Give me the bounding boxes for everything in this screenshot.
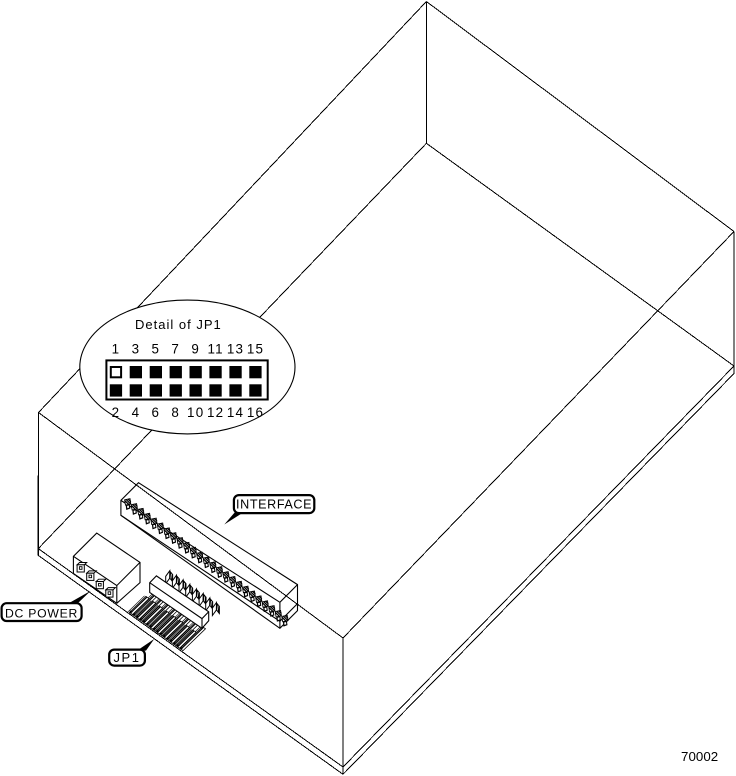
svg-text:5: 5: [151, 341, 160, 356]
svg-text:JP1: JP1: [113, 650, 140, 665]
svg-text:INTERFACE: INTERFACE: [236, 498, 312, 512]
svg-text:10: 10: [187, 405, 204, 420]
svg-text:Detail of JP1: Detail of JP1: [135, 317, 222, 332]
svg-text:14: 14: [227, 405, 244, 420]
svg-text:6: 6: [151, 405, 160, 420]
svg-text:2: 2: [112, 405, 121, 420]
svg-text:13: 13: [227, 341, 244, 356]
svg-text:11: 11: [207, 341, 223, 356]
svg-text:9: 9: [191, 341, 200, 356]
svg-text:16: 16: [247, 405, 264, 420]
svg-text:3: 3: [132, 341, 141, 356]
svg-text:15: 15: [247, 341, 264, 356]
svg-text:70002: 70002: [681, 749, 718, 764]
svg-text:8: 8: [171, 405, 180, 420]
svg-text:4: 4: [132, 405, 141, 420]
svg-text:1: 1: [112, 341, 121, 356]
svg-text:7: 7: [171, 341, 180, 356]
svg-text:DC POWER: DC POWER: [5, 607, 78, 621]
svg-text:12: 12: [207, 405, 224, 420]
